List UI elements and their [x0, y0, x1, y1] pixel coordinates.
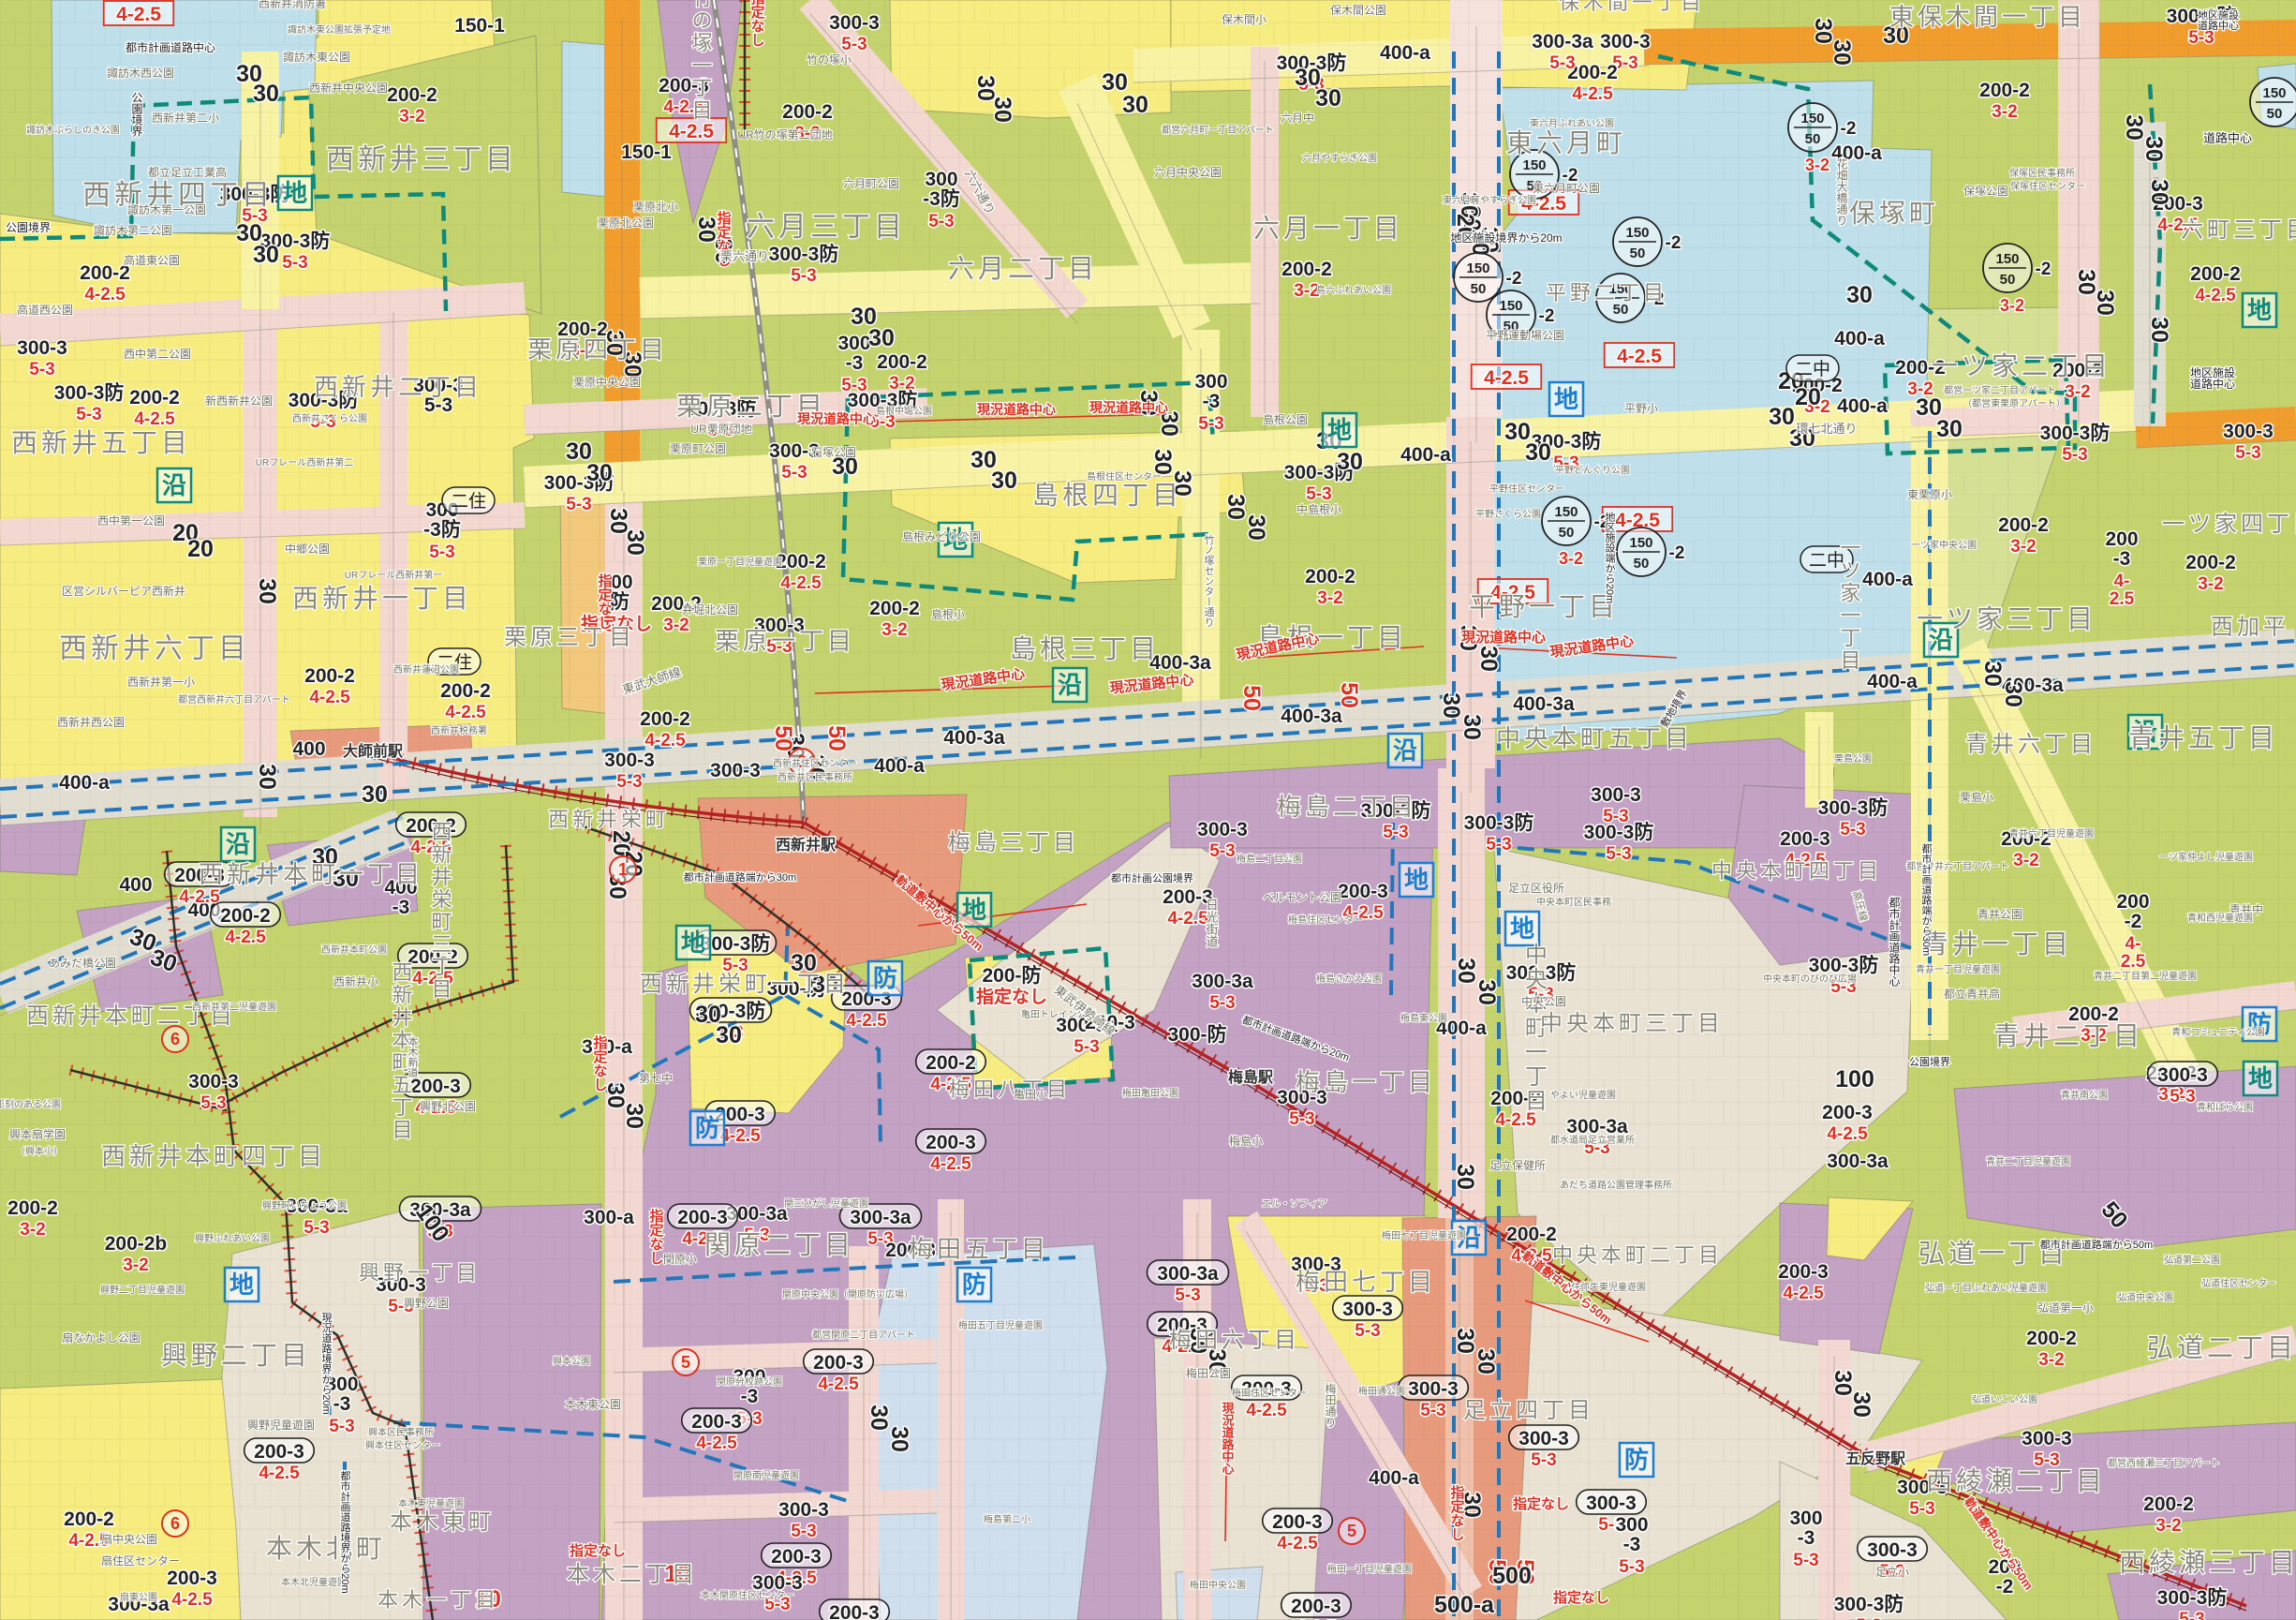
svg-text:4-2.5: 4-2.5	[1827, 1124, 1868, 1144]
svg-text:梅田公園: 梅田公園	[1186, 1366, 1231, 1380]
place-label: 梅島さかえ公園	[1316, 973, 1382, 985]
place-label: 梅田一丁目児童遊園	[1327, 1563, 1412, 1575]
svg-text:栗原四丁目: 栗原四丁目	[527, 335, 668, 364]
svg-text:指定なし: 指定なし	[592, 1034, 608, 1092]
zoning-code: 400	[119, 874, 152, 896]
svg-text:足立小: 足立小	[1875, 1565, 1909, 1579]
svg-text:30: 30	[622, 529, 648, 556]
svg-text:400-3a: 400-3a	[1281, 706, 1342, 727]
district-label: 中央本町五丁目	[1496, 724, 1693, 752]
svg-text:300-3防: 300-3防	[2157, 1587, 2228, 1609]
svg-text:200-2: 200-2	[2185, 552, 2236, 573]
annotation-label: 現況道路中心	[797, 411, 876, 426]
svg-text:30: 30	[1122, 92, 1148, 118]
place-label: 六月やすらぎ公園	[1302, 152, 1377, 164]
svg-text:4-2.5: 4-2.5	[1277, 1534, 1318, 1553]
svg-text:西新井栄町一丁目: 西新井栄町一丁目	[640, 972, 850, 997]
annotation-label: 地区施設道路中心	[2198, 8, 2239, 32]
place-label: 栗原北小	[633, 201, 678, 214]
svg-text:5-3: 5-3	[304, 1218, 329, 1238]
svg-text:西新井六丁目: 西新井六丁目	[59, 633, 250, 664]
svg-text:5-3: 5-3	[928, 212, 954, 231]
svg-text:梅島東公園: 梅島東公園	[1400, 1012, 1447, 1024]
svg-text:3-2: 3-2	[399, 107, 424, 126]
svg-text:関原中央公園（関原防災広場）: 関原中央公園（関原防災広場）	[782, 1288, 913, 1300]
annotation-label: 地区施設道路中心	[2190, 365, 2235, 391]
district-label: 梅田七丁目	[1296, 1268, 1436, 1296]
zoning-code: 400-3a	[1513, 693, 1575, 715]
place-label: 興野町いちょう公園	[262, 1200, 347, 1211]
svg-text:指定なし: 指定なし	[1449, 1484, 1465, 1541]
svg-text:指定なし: 指定なし	[749, 0, 765, 47]
district-label: 中央本町四丁目	[1711, 859, 1882, 883]
svg-text:都市計画道路中心: 都市計画道路中心	[1888, 897, 1901, 987]
district-label: 保木間一丁目	[1559, 0, 1705, 14]
svg-text:指定なし: 指定なし	[570, 1542, 626, 1559]
svg-text:現況道路境界から20m: 現況道路境界から20m	[320, 1312, 333, 1415]
svg-text:都営一ツ家二丁目アパート: 都営一ツ家二丁目アパート	[1944, 384, 2056, 396]
svg-text:5: 5	[1347, 1522, 1356, 1540]
place-label: 興本扇学園	[9, 1127, 66, 1141]
svg-text:西新井駅: 西新井駅	[776, 836, 837, 854]
svg-text:3-2: 3-2	[2013, 851, 2038, 870]
place-label: 弘道中央公園	[2117, 1291, 2173, 1303]
svg-text:50: 50	[1630, 245, 1646, 261]
svg-text:-2: -2	[1666, 233, 1681, 253]
road-width-number: 30	[2146, 317, 2172, 343]
place-label: 六月中央公園	[1154, 165, 1222, 179]
svg-text:井堀北公園: 井堀北公園	[682, 602, 738, 617]
svg-text:地: 地	[1404, 866, 1429, 894]
svg-text:-2: -2	[1506, 269, 1522, 289]
svg-text:30: 30	[868, 325, 895, 351]
district-plan-marker: 地	[676, 926, 710, 959]
svg-text:青井南公園: 青井南公園	[2061, 1089, 2108, 1101]
road-width-number: 30	[2146, 179, 2172, 205]
place-label: 興本住区センター	[365, 1439, 440, 1451]
svg-text:諏訪木ぶらしのき公園: 諏訪木ぶらしのき公園	[26, 124, 120, 136]
svg-text:30: 30	[2000, 681, 2026, 707]
svg-text:青井五丁目: 青井五丁目	[2128, 723, 2278, 752]
svg-text:扇中央公園: 扇中央公園	[101, 1532, 157, 1546]
svg-text:関原二丁目: 関原二丁目	[704, 1230, 854, 1259]
svg-text:興野児童遊園: 興野児童遊園	[247, 1418, 315, 1432]
svg-text:30: 30	[1474, 979, 1500, 1005]
svg-text:200-2: 200-2	[869, 598, 920, 619]
svg-text:200-3: 200-3	[410, 1076, 461, 1097]
svg-text:30: 30	[621, 1103, 647, 1129]
svg-text:200-3: 200-3	[771, 1546, 822, 1568]
svg-text:400-a: 400-a	[1862, 569, 1913, 590]
svg-text:西新井住区センター: 西新井住区センター	[773, 757, 857, 769]
svg-text:彫刻のある公園: 彫刻のある公園	[0, 1098, 61, 1110]
place-label: 興野児童遊園	[247, 1418, 315, 1432]
district-label: 梅田六丁目	[1169, 1328, 1300, 1353]
road-width-number: 30	[1936, 416, 1963, 442]
svg-text:5-3: 5-3	[1909, 1499, 1934, 1519]
svg-text:300-3防: 300-3防	[54, 382, 125, 404]
place-label: 保木間小	[1222, 13, 1267, 26]
svg-text:梅田通り: 梅田通り	[1324, 1382, 1337, 1428]
svg-text:一ツ家中央公園: 一ツ家中央公園	[1911, 539, 1977, 551]
svg-text:5-3: 5-3	[2170, 1087, 2195, 1107]
svg-text:5-3: 5-3	[791, 266, 816, 286]
svg-text:5-3: 5-3	[1603, 807, 1628, 826]
road-width-number: 50	[1336, 682, 1362, 708]
svg-text:-2: -2	[1669, 543, 1685, 563]
svg-text:梅田七丁目: 梅田七丁目	[1296, 1268, 1436, 1296]
place-label: 平野運動場公園	[1486, 329, 1564, 342]
place-label: 都営六月町一丁目アパート	[1162, 124, 1274, 136]
svg-text:4-2.5: 4-2.5	[116, 4, 161, 25]
svg-text:公園境界: 公園境界	[6, 220, 51, 234]
svg-text:栗島公園: 栗島公園	[1834, 752, 1872, 765]
svg-text:梅田一丁目児童遊園: 梅田一丁目児童遊園	[1327, 1563, 1412, 1575]
svg-text:都市計画道路端から30m: 都市計画道路端から30m	[684, 870, 796, 884]
svg-text:5: 5	[681, 1353, 690, 1372]
svg-text:六月中: 六月中	[1281, 111, 1314, 125]
zoning-code: 400-a	[874, 755, 925, 777]
place-label: 西新井税務署	[431, 724, 487, 736]
svg-text:諏訪木第一公園: 諏訪木第一公園	[127, 202, 206, 216]
svg-text:平野住区センター: 平野住区センター	[1489, 483, 1564, 495]
svg-text:（都営東栗原アパート）: （都営東栗原アパート）	[1963, 397, 2066, 409]
svg-text:30: 30	[989, 97, 1015, 123]
svg-text:4-2.5: 4-2.5	[309, 688, 350, 707]
svg-text:30: 30	[716, 1022, 742, 1048]
place-label: 関原小	[663, 1253, 697, 1266]
circled-number-marker: 6	[162, 1026, 188, 1052]
svg-text:現況道路中心: 現況道路中心	[1461, 629, 1546, 646]
svg-text:300-3防: 300-3防	[1464, 812, 1534, 834]
district-label: 一ツ家四丁目	[2162, 512, 2296, 537]
svg-text:西新井栄町三丁目: 西新井栄町三丁目	[429, 821, 452, 1001]
district-label: 西新井栄町	[548, 808, 670, 831]
svg-text:二中: 二中	[1795, 359, 1830, 379]
svg-text:島六ふれあい公園: 島六ふれあい公園	[1316, 284, 1391, 296]
svg-text:4-2.5: 4-2.5	[1617, 346, 1662, 367]
svg-text:あみだ橋公園: あみだ橋公園	[49, 957, 116, 970]
svg-text:梅田五丁目: 梅田五丁目	[909, 1235, 1049, 1263]
svg-text:150: 150	[1554, 504, 1578, 520]
annotation-label: 竹ノ塚センター通り	[1203, 533, 1215, 627]
road-width-number: 30	[362, 781, 388, 808]
place-label: 栗原町公園	[670, 442, 726, 455]
svg-text:4-2.5: 4-2.5	[1495, 1110, 1536, 1130]
svg-text:5-3: 5-3	[429, 542, 454, 562]
svg-text:50: 50	[2000, 272, 2016, 288]
annotation-label: 梅田通り	[1324, 1382, 1337, 1428]
svg-text:竹ノ塚センター通り: 竹ノ塚センター通り	[1203, 533, 1215, 627]
svg-text:西新井五丁目: 西新井五丁目	[11, 428, 191, 457]
district-plan-marker: 防	[690, 1111, 724, 1145]
svg-text:二住: 二住	[451, 491, 486, 512]
svg-text:100: 100	[1835, 1066, 1874, 1092]
svg-text:関原分校跡公園: 関原分校跡公園	[717, 1375, 782, 1388]
place-label: 青井六丁目児童遊園	[2009, 827, 2094, 840]
svg-text:5-3: 5-3	[781, 463, 807, 483]
svg-text:300-a: 300-a	[584, 1207, 634, 1228]
zoning-code: 200-24-2.5	[80, 262, 130, 305]
district-plan-marker: 地	[1549, 382, 1583, 416]
place-label: 亀田小	[1014, 1088, 1047, 1101]
svg-text:本木東公園: 本木東公園	[565, 1398, 621, 1411]
svg-text:200-2: 200-2	[782, 101, 833, 123]
svg-text:興本扇学園: 興本扇学園	[9, 1127, 66, 1141]
svg-text:一ツ家二丁目: 一ツ家二丁目	[1932, 351, 2111, 380]
svg-text:4-2.5: 4-2.5	[780, 573, 822, 593]
svg-text:指定なし: 指定なし	[1513, 1495, 1569, 1512]
svg-text:200-2: 200-2	[2026, 1328, 2077, 1349]
svg-text:150: 150	[1800, 111, 1824, 126]
svg-text:青井一丁目: 青井一丁目	[1922, 929, 2072, 959]
district-label: 東六月町	[1506, 128, 1626, 157]
svg-text:3-2: 3-2	[2000, 296, 2024, 315]
district-label: 六月二丁目	[948, 254, 1098, 283]
annotation-label: 地区施設端から20m	[1604, 511, 1616, 603]
svg-text:あだち道路公園管理事務所: あだち道路公園管理事務所	[1560, 1179, 1672, 1191]
place-label: 平野どんぐり公園	[1555, 465, 1630, 476]
station-label: 西新井駅	[776, 836, 837, 854]
road-width-number: 30	[1846, 282, 1873, 308]
district-label: 六月三丁目	[747, 212, 906, 243]
svg-text:30: 30	[1315, 85, 1341, 111]
svg-text:200-3: 200-3	[1778, 1261, 1829, 1283]
road-width-number: 30	[254, 764, 280, 790]
annotation-label: 指定なし	[592, 1034, 608, 1092]
svg-text:梅島住区センター: 梅島住区センター	[1288, 914, 1363, 926]
svg-text:200-2: 200-2	[877, 351, 927, 373]
svg-text:沿: 沿	[1393, 736, 1417, 765]
place-label: 西新井第一小	[127, 675, 195, 689]
svg-text:指定なし: 指定なし	[648, 1208, 664, 1265]
place-label: 梅田公園	[1186, 1366, 1231, 1380]
svg-text:4-2.5: 4-2.5	[696, 1434, 737, 1453]
place-label: 扇東公園	[120, 1591, 157, 1603]
svg-text:足立区役所: 足立区役所	[1508, 881, 1564, 895]
annotation-label: 道路中心	[2203, 131, 2252, 145]
svg-text:地: 地	[230, 1271, 254, 1299]
svg-text:地: 地	[681, 929, 705, 957]
svg-text:3-2: 3-2	[1559, 549, 1583, 568]
svg-text:竹の塚小: 竹の塚小	[807, 53, 852, 67]
svg-text:梅島三丁目: 梅島三丁目	[948, 830, 1079, 855]
station-label: 五反野駅	[1845, 1450, 1906, 1467]
place-label: 平野小	[1624, 402, 1658, 415]
zoning-code: 300-防	[1167, 1024, 1226, 1046]
svg-text:5-3: 5-3	[1209, 841, 1235, 861]
place-label: 弘道第一小	[2037, 1301, 2094, 1315]
place-label: 中郷公園	[285, 542, 330, 556]
svg-text:300-3a: 300-3a	[1157, 1263, 1219, 1285]
district-plan-marker: 地	[2243, 293, 2276, 327]
road-width-number: 30	[1243, 514, 1269, 541]
svg-text:400-a: 400-a	[1867, 671, 1918, 692]
svg-text:弘道第一小: 弘道第一小	[2037, 1301, 2094, 1315]
svg-text:弘道住区センター: 弘道住区センター	[2201, 1277, 2276, 1289]
place-label: 西新井蓮沼公園	[393, 663, 459, 676]
svg-text:沿: 沿	[1058, 671, 1082, 699]
place-label: 都営西新井六丁目アパート	[178, 693, 290, 706]
svg-text:400: 400	[119, 874, 152, 896]
zoning-code: 200-防指定なし	[976, 965, 1047, 1007]
zoning-code: 200-24-2.5	[776, 551, 826, 593]
zoning-code: 300-3	[710, 760, 761, 781]
svg-text:都営関原二丁目アパート: 都営関原二丁目アパート	[812, 1329, 915, 1341]
svg-text:20: 20	[187, 536, 214, 562]
svg-text:関原南児童遊園: 関原南児童遊園	[733, 1469, 799, 1481]
svg-text:50: 50	[1559, 525, 1575, 541]
svg-text:-2: -2	[1539, 306, 1555, 326]
district-plan-marker: 地	[225, 1268, 259, 1301]
svg-text:防: 防	[695, 1114, 719, 1142]
school-district-marker: 二住	[442, 487, 495, 513]
place-label: 西中第一公園	[97, 513, 165, 528]
road-width-number: 30	[1848, 1391, 1874, 1418]
place-label: 本木東公園	[565, 1398, 621, 1411]
place-label: 扇住区センター	[101, 1553, 180, 1568]
place-label: 扇なかよし公園	[62, 1330, 140, 1345]
zoning-code: 200-24-2.5	[304, 665, 355, 707]
district-label: 栗原一丁目	[715, 627, 855, 655]
svg-text:300-3: 300-3	[1586, 1493, 1637, 1514]
place-label: 梅島二丁目公園	[1237, 853, 1302, 865]
district-label: 関原二丁目	[704, 1230, 854, 1259]
svg-text:都市計画道路中心: 都市計画道路中心	[126, 40, 215, 54]
road-width-number: 30	[1337, 449, 1363, 475]
svg-text:弘道二丁目: 弘道二丁目	[2147, 1333, 2296, 1362]
svg-text:30: 30	[1452, 1164, 1478, 1190]
annotation-label: 指定なし	[1449, 1484, 1465, 1541]
svg-text:梅田六丁目: 梅田六丁目	[1169, 1328, 1300, 1353]
svg-text:現況道路中心: 現況道路中心	[1089, 400, 1168, 415]
place-label: 彫刻のある公園	[0, 1098, 61, 1110]
svg-text:200-3: 200-3	[167, 1568, 217, 1589]
place-label: 梅田亀田公園	[1122, 1087, 1178, 1099]
svg-text:現況道路中心: 現況道路中心	[977, 402, 1056, 417]
svg-text:4-2.5: 4-2.5	[1484, 367, 1529, 389]
district-label: 西新井二丁目	[314, 373, 482, 401]
zoning-code: 4-2.5	[1472, 364, 1542, 389]
place-label: 栗原一丁目児童遊園	[698, 556, 782, 568]
place-label: 青井二丁目児童遊園	[1986, 1155, 2070, 1167]
svg-text:東六月ふれあい公園: 東六月ふれあい公園	[1530, 117, 1614, 129]
district-label: 西新井本町四丁目	[101, 1142, 326, 1170]
svg-text:都営西綾瀬三丁目アパート: 都営西綾瀬三丁目アパート	[2108, 1457, 2220, 1469]
svg-text:弘道中央公園: 弘道中央公園	[2117, 1291, 2173, 1303]
annotation-label: 現況道路中心	[1461, 629, 1546, 646]
svg-text:5-3: 5-3	[200, 1093, 226, 1113]
svg-text:梅島二丁目公園: 梅島二丁目公園	[1237, 853, 1302, 865]
svg-text:UR栗原団地: UR栗原団地	[690, 423, 751, 436]
district-label: 中央本町三丁目	[1540, 1011, 1724, 1036]
svg-text:300-3: 300-3	[1600, 31, 1651, 52]
road-width-number: 30	[1475, 646, 1502, 672]
svg-text:4-2.5: 4-2.5	[846, 1011, 887, 1031]
svg-text:200-2: 200-2	[1998, 514, 2049, 536]
svg-text:30: 30	[1848, 1391, 1874, 1418]
road-width-number: 30	[1315, 85, 1341, 111]
svg-text:300-防: 300-防	[1167, 1024, 1226, 1046]
svg-text:島根小: 島根小	[931, 607, 965, 621]
place-label: UR竹の塚第二団地	[737, 128, 832, 141]
place-label: 諏訪木第一公園	[127, 202, 206, 216]
svg-text:足立四丁目: 足立四丁目	[1463, 1398, 1594, 1423]
district-plan-marker: 地	[1400, 863, 1433, 897]
road-width-number: 30	[886, 1426, 912, 1452]
svg-text:30: 30	[1936, 416, 1963, 442]
svg-text:300-3a: 300-3a	[1532, 31, 1593, 52]
svg-text:興野北公園: 興野北公園	[420, 1100, 476, 1113]
place-label: 本木北児童遊園	[281, 1576, 347, 1588]
annotation-label: 指定なし	[597, 572, 613, 630]
svg-text:都営西新井六丁目アパート: 都営西新井六丁目アパート	[178, 693, 290, 706]
station-label: 大師前駅	[343, 742, 404, 760]
zoning-code: 400-a	[59, 772, 110, 794]
place-label: 区営シルバーピア西新井	[62, 584, 185, 598]
svg-text:300-3防: 300-3防	[769, 244, 839, 265]
svg-text:200-2: 200-2	[640, 708, 690, 730]
place-label: 井堀北公園	[682, 602, 738, 617]
svg-text:梅田五丁目児童遊園: 梅田五丁目児童遊園	[958, 1319, 1043, 1331]
svg-text:青井六丁目児童遊園: 青井六丁目児童遊園	[2009, 827, 2094, 840]
road-width-number: 30	[1452, 1164, 1478, 1190]
zoning-map-canvas: 4-2.5200-23-2300-3防5-3300-3防5-3200-24-2.…	[0, 0, 2296, 1620]
annotation-label: 現況道路中心	[1089, 400, 1168, 415]
svg-text:400-3a: 400-3a	[943, 727, 1005, 749]
svg-text:梅田住区センター: 梅田住区センター	[1232, 1387, 1307, 1399]
place-label: 中島根小	[1296, 502, 1341, 516]
district-plan-marker: 沿	[157, 468, 191, 502]
zoning-code: 200-34-2.5	[1281, 1593, 1352, 1620]
svg-text:栗原中央公園: 栗原中央公園	[573, 375, 641, 389]
svg-text:400-a: 400-a	[874, 755, 925, 777]
place-label: 西新井小	[333, 974, 378, 988]
place-label: 梅島住区センター	[1288, 914, 1363, 926]
svg-text:200-2: 200-2	[1281, 259, 1332, 280]
svg-text:島根住区センター: 島根住区センター	[1087, 470, 1162, 483]
svg-text:200-2: 200-2	[2143, 1494, 2194, 1515]
road-width-number: 30	[586, 460, 613, 486]
place-label: 石塚公園	[811, 446, 856, 459]
place-label: 島根小	[931, 607, 965, 621]
svg-text:地区施設端から20m: 地区施設端から20m	[1604, 511, 1616, 603]
place-label: 東栗原小	[1907, 488, 1952, 501]
svg-text:30: 30	[1243, 514, 1269, 541]
svg-text:青和ばら公園: 青和ばら公園	[2197, 1101, 2253, 1113]
place-label: 興野ふれあい公園	[195, 1233, 270, 1244]
annotation-label: 指定なし	[749, 0, 765, 47]
svg-text:島根三丁目: 島根三丁目	[1010, 634, 1160, 663]
svg-text:西新井蓮沼公園: 西新井蓮沼公園	[393, 663, 459, 676]
place-label: 諏訪木東公園拡張予定地	[288, 23, 391, 36]
road-width-number: 30	[253, 242, 279, 268]
svg-text:西新井一丁目: 西新井一丁目	[292, 584, 472, 613]
place-label: 興本公園	[553, 1355, 590, 1367]
svg-text:西新井第二小: 西新井第二小	[152, 111, 219, 125]
station-label: 梅島駅	[1228, 1068, 1274, 1086]
annotation-label: 地区施設境界から20m	[1450, 230, 1562, 245]
place-label: 保木間公園	[1330, 4, 1386, 17]
place-label: 西新井消防署	[259, 0, 326, 10]
svg-text:五反野駅: 五反野駅	[1845, 1450, 1906, 1467]
svg-text:防: 防	[962, 1271, 986, 1299]
svg-text:花畑大橋通り: 花畑大橋通り	[1835, 157, 1848, 226]
place-label: 足立小	[1875, 1565, 1909, 1579]
svg-text:200-3: 200-3	[1272, 1511, 1323, 1533]
svg-text:現況道路中心: 現況道路中心	[1221, 1402, 1235, 1476]
svg-text:5-3: 5-3	[76, 405, 101, 424]
